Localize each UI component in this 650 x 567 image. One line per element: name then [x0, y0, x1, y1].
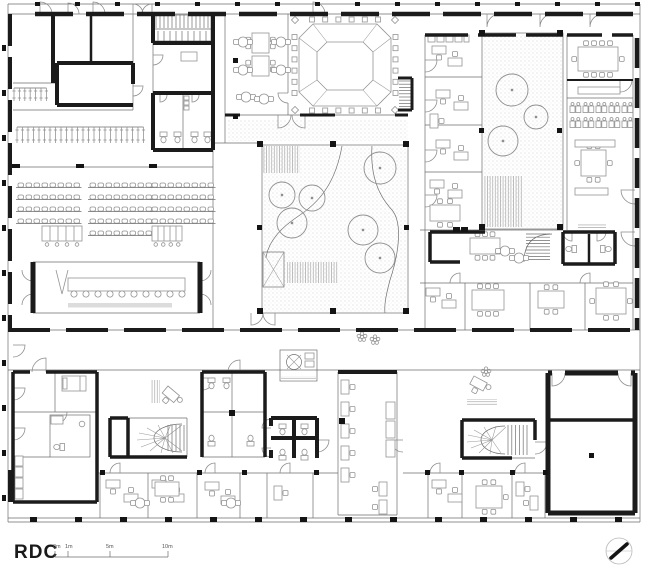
auditorium-seat — [176, 207, 182, 211]
auditorium-seat — [114, 195, 120, 199]
auditorium-seat — [130, 231, 136, 235]
auditorium-seat — [122, 219, 128, 223]
chair-symbol — [71, 291, 77, 297]
round-table — [237, 92, 256, 102]
toilet-symbol — [160, 132, 167, 143]
auditorium-seat — [106, 183, 112, 187]
auditorium-seat — [176, 183, 182, 187]
chair-symbol — [143, 291, 149, 297]
auditorium-seat — [130, 195, 136, 199]
plant-icon — [370, 335, 380, 344]
auditorium-seat — [90, 183, 96, 187]
auditorium-seat — [98, 195, 104, 199]
scale-bar: 0m 1m 5m 10m — [53, 544, 173, 557]
auditorium-seat — [90, 231, 96, 235]
auditorium-seat — [114, 207, 120, 211]
chair-symbol — [119, 291, 125, 297]
auditorium-seat — [122, 183, 128, 187]
column-post — [229, 410, 235, 416]
chair-symbol — [107, 291, 113, 297]
meeting-table — [472, 284, 504, 316]
auditorium-seat — [90, 195, 96, 199]
chair-symbol — [131, 291, 137, 297]
desk-symbol — [430, 180, 444, 194]
chair-symbol — [95, 291, 101, 297]
column-post — [479, 224, 485, 230]
chair-symbol — [167, 291, 173, 297]
auditorium-seat — [50, 195, 56, 199]
auditorium-seat — [34, 183, 40, 187]
column-post — [557, 128, 562, 133]
auditorium-seat — [200, 195, 206, 199]
desk-symbol — [448, 184, 462, 199]
column-post — [557, 30, 563, 36]
desk-symbol — [373, 482, 388, 496]
desk-symbol — [454, 146, 468, 161]
column-post — [453, 227, 460, 232]
auditorium-seat — [122, 231, 128, 235]
desk-symbol — [341, 446, 355, 460]
chair-symbol — [179, 291, 185, 297]
auditorium-seat — [18, 219, 24, 223]
desk-symbol — [341, 402, 355, 416]
auditorium-seat — [138, 207, 144, 211]
meeting-table — [538, 285, 564, 314]
auditorium-seat — [106, 231, 112, 235]
auditorium-seat — [208, 183, 214, 187]
auditorium-seat — [122, 195, 128, 199]
plants — [357, 332, 491, 376]
auditorium-seat — [146, 219, 152, 223]
desk-symbol — [436, 90, 450, 104]
auditorium-seat — [208, 219, 214, 223]
counter-table — [386, 421, 395, 438]
auditorium-seat — [192, 207, 198, 211]
auditorium-seat — [130, 219, 136, 223]
column-post — [425, 470, 430, 475]
column-post — [557, 224, 563, 230]
auditorium-seat — [18, 183, 24, 187]
auditorium-seat — [200, 207, 206, 211]
desk-symbol — [158, 386, 183, 411]
column-post — [479, 128, 484, 133]
toilet-symbol — [208, 435, 215, 446]
auditorium-seat — [168, 207, 174, 211]
meeting-table — [572, 41, 624, 77]
auditorium-seat — [106, 219, 112, 223]
desk-symbol — [448, 52, 462, 67]
ring-table-outer — [299, 24, 391, 106]
column-post — [479, 30, 485, 36]
auditorium-seat — [152, 219, 158, 223]
auditorium-seat — [184, 195, 190, 199]
auditorium-seat — [192, 183, 198, 187]
auditorium-seat — [160, 183, 166, 187]
auditorium-seat — [138, 231, 144, 235]
chair-symbol — [155, 291, 161, 297]
auditorium-seat — [106, 195, 112, 199]
counter-table — [181, 52, 197, 61]
toilet-symbol — [191, 132, 198, 143]
column-post — [76, 164, 84, 168]
auditorium-seat — [58, 219, 64, 223]
auditorium-seat — [192, 219, 198, 223]
auditorium-seat — [58, 195, 64, 199]
auditorium-seat — [114, 231, 120, 235]
counter-table — [386, 440, 395, 457]
column-post — [403, 308, 409, 314]
auditorium-seat — [34, 195, 40, 199]
chair-symbol — [83, 291, 89, 297]
auditorium-seat — [208, 195, 214, 199]
auditorium-seat — [130, 183, 136, 187]
column-post — [257, 141, 263, 147]
cloakroom-racks — [12, 88, 145, 143]
meeting-table — [476, 480, 508, 514]
column-post — [510, 470, 515, 475]
auditorium-seat — [130, 207, 136, 211]
courtyard-ground — [150, 34, 606, 405]
auditorium-seat — [42, 219, 48, 223]
toilet-symbol — [54, 444, 65, 451]
desk-symbol — [442, 294, 456, 309]
auditorium-seat — [184, 183, 190, 187]
desk-symbol — [516, 482, 530, 496]
column-post — [197, 470, 202, 475]
auditorium-seat — [160, 207, 166, 211]
auditorium-seat — [184, 219, 190, 223]
scale-tick-label: 0m — [53, 544, 61, 550]
auditorium-seat — [138, 183, 144, 187]
flipchart — [56, 270, 68, 294]
floor-plan-rdc: RDC 0m 1m 5m 10m — [0, 0, 650, 567]
round-table — [510, 253, 529, 263]
column-post — [12, 164, 20, 168]
deck-strip — [287, 262, 338, 283]
desk-symbol — [341, 468, 355, 482]
auditorium-seat — [26, 183, 32, 187]
scale-tick-label: 10m — [162, 544, 173, 550]
toilet-symbol — [223, 378, 230, 389]
auditorium-seat — [42, 183, 48, 187]
sink — [79, 421, 85, 427]
plant-icon — [357, 332, 367, 341]
auditorium-seat — [66, 207, 72, 211]
toilet-symbol — [279, 449, 286, 460]
auditorium-seat — [74, 219, 80, 223]
auditorium-seat — [208, 207, 214, 211]
auditorium-seat — [122, 207, 128, 211]
desk-symbol — [106, 480, 120, 494]
column-post — [233, 58, 238, 63]
toilet-symbol — [247, 435, 254, 446]
auditorium-seat — [152, 195, 158, 199]
auditorium-seat — [58, 183, 64, 187]
column-post — [404, 225, 409, 230]
toilet-symbol — [601, 246, 612, 253]
auditorium-seat — [106, 207, 112, 211]
auditorium-seat — [114, 183, 120, 187]
deck-strip — [263, 146, 300, 173]
desk-symbol — [274, 486, 288, 500]
auditorium-seat — [98, 207, 104, 211]
auditorium-seating — [16, 183, 216, 246]
auditorium-seat — [26, 219, 32, 223]
auditorium-seat — [98, 183, 104, 187]
deck-strip — [484, 176, 523, 227]
counter-table — [575, 188, 608, 195]
auditorium-seat — [34, 207, 40, 211]
desk-symbol — [454, 96, 468, 111]
desk-symbol — [432, 46, 446, 60]
floor-label: RDC — [14, 542, 58, 563]
auditorium-seat — [50, 219, 56, 223]
column-post — [543, 470, 548, 475]
column-post — [589, 453, 594, 458]
desk-symbol — [524, 496, 539, 510]
column-post — [257, 225, 262, 230]
desk-symbol — [467, 376, 492, 399]
toilet-symbol — [208, 378, 215, 389]
desk-symbol — [448, 488, 462, 503]
desk-symbol — [432, 480, 446, 494]
ring-table-chairs — [291, 16, 398, 113]
meeting-table — [575, 144, 612, 182]
toilet-symbol — [174, 132, 181, 143]
toilet-symbol — [204, 132, 211, 143]
bathtub — [51, 416, 63, 424]
auditorium-seat — [50, 207, 56, 211]
column-post — [461, 227, 468, 232]
auditorium-seat — [138, 195, 144, 199]
auditorium-seat — [66, 183, 72, 187]
auditorium-seat — [146, 183, 152, 187]
auditorium-seat — [168, 219, 174, 223]
auditorium-seat — [160, 219, 166, 223]
round-table — [255, 94, 274, 104]
council-room-furniture — [68, 278, 185, 308]
meeting-table — [470, 232, 500, 260]
desk-symbol — [373, 500, 388, 514]
auditorium-seat — [98, 219, 104, 223]
auditorium-seat — [176, 219, 182, 223]
column-post — [339, 418, 345, 424]
desk-symbol — [341, 424, 355, 438]
column-post — [233, 114, 238, 119]
desk-symbol — [205, 482, 219, 496]
auditorium-seat — [176, 195, 182, 199]
auditorium-seat — [90, 219, 96, 223]
auditorium-seat — [146, 195, 152, 199]
counter-table — [15, 489, 23, 499]
classroom-desks — [570, 103, 633, 128]
column-post — [330, 308, 336, 314]
council-table — [68, 278, 185, 291]
column-post — [242, 470, 247, 475]
ring-table-inner — [317, 42, 373, 90]
toilet-symbol — [279, 424, 286, 435]
auditorium-seat — [152, 183, 158, 187]
auditorium-seat — [66, 195, 72, 199]
column-post — [459, 470, 464, 475]
desk-symbol — [436, 140, 450, 154]
auditorium-seat — [146, 231, 152, 235]
auditorium-seat — [138, 219, 144, 223]
auditorium-seat — [90, 207, 96, 211]
column-post — [257, 308, 263, 314]
toilet-symbol — [566, 246, 577, 253]
auditorium-seat — [58, 207, 64, 211]
round-table — [234, 65, 253, 75]
auditorium-seat — [18, 207, 24, 211]
auditorium-seat — [42, 207, 48, 211]
auditorium-seat — [74, 195, 80, 199]
column-post — [403, 141, 409, 147]
auditorium-seat — [26, 195, 32, 199]
floor-plan-sheet: RDC 0m 1m 5m 10m — [0, 0, 650, 567]
column-post — [149, 164, 157, 168]
toilet-symbol — [301, 424, 308, 435]
counter-table — [575, 140, 615, 147]
desk-symbol — [430, 114, 444, 128]
scale-tick-label: 5m — [106, 544, 114, 550]
counter-table — [15, 456, 23, 466]
plant-icon — [481, 367, 491, 376]
auditorium-seat — [200, 183, 206, 187]
auditorium-seat — [50, 183, 56, 187]
north-arrow-icon — [606, 538, 632, 564]
auditorium-seat — [152, 207, 158, 211]
meeting-table — [430, 199, 460, 227]
auditorium-seat — [42, 195, 48, 199]
auditorium-seat — [74, 183, 80, 187]
desk-symbol — [426, 288, 440, 302]
auditorium-seat — [192, 195, 198, 199]
column-post — [314, 470, 319, 475]
auditorium-seat — [26, 207, 32, 211]
auditorium-seat — [168, 195, 174, 199]
column-post — [100, 470, 105, 475]
auditorium-seat — [146, 207, 152, 211]
meeting-table — [590, 282, 632, 320]
auditorium-seat — [114, 219, 120, 223]
counter-table — [15, 467, 23, 477]
auditorium-seat — [18, 195, 24, 199]
auditorium-seat — [200, 219, 206, 223]
auditorium-seat — [184, 207, 190, 211]
auditorium-seat — [168, 183, 174, 187]
auditorium-seat — [98, 231, 104, 235]
meeting-table — [246, 56, 275, 76]
counter-table — [386, 402, 395, 419]
counter-table — [578, 87, 620, 94]
desk-symbol — [341, 380, 355, 394]
toilet-symbol — [301, 449, 308, 460]
scale-tick-label: 1m — [65, 544, 73, 550]
counter-table — [15, 478, 23, 488]
auditorium-seat — [160, 195, 166, 199]
column-post — [330, 141, 336, 147]
auditorium-seat — [66, 219, 72, 223]
auditorium-seat — [34, 219, 40, 223]
auditorium-seat — [74, 207, 80, 211]
